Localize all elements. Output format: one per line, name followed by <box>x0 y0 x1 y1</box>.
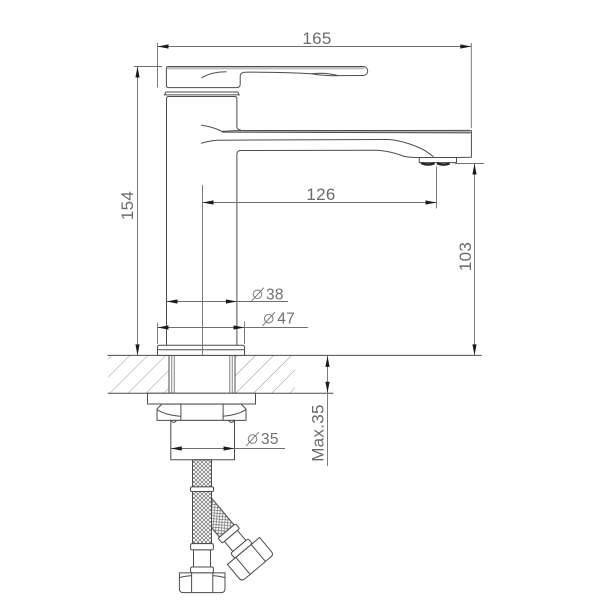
svg-text:154: 154 <box>118 191 137 220</box>
svg-text:165: 165 <box>302 29 331 48</box>
svg-text:Max.35: Max.35 <box>309 404 328 462</box>
svg-text:126: 126 <box>306 185 335 204</box>
svg-text:103: 103 <box>456 242 475 271</box>
svg-text:35: 35 <box>261 431 279 448</box>
svg-text:47: 47 <box>277 310 295 327</box>
svg-text:38: 38 <box>266 286 284 303</box>
